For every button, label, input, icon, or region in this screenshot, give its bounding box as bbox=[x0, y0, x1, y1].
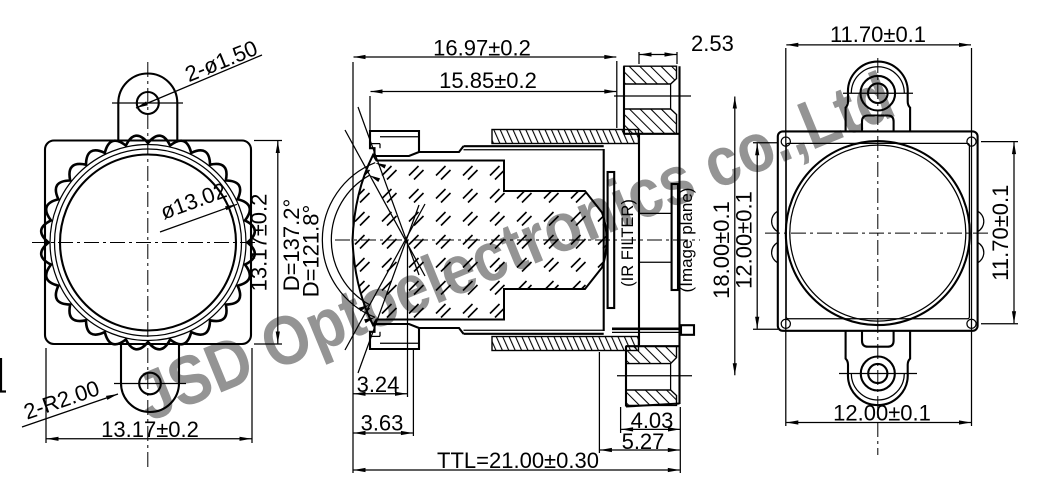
svg-text:15.85±0.2: 15.85±0.2 bbox=[439, 68, 537, 93]
svg-text:TTL=21.00±0.30: TTL=21.00±0.30 bbox=[437, 448, 599, 473]
svg-text:13.17±0.2: 13.17±0.2 bbox=[101, 417, 199, 442]
svg-text:13.17±0.2: 13.17±0.2 bbox=[247, 194, 272, 292]
svg-text:11.70±0.1: 11.70±0.1 bbox=[830, 22, 926, 47]
svg-text:16.97±0.2: 16.97±0.2 bbox=[433, 36, 531, 61]
svg-text:11.70±0.1: 11.70±0.1 bbox=[988, 185, 1013, 281]
svg-text:3.63: 3.63 bbox=[361, 411, 404, 436]
svg-text:18.00±0.1: 18.00±0.1 bbox=[709, 201, 734, 299]
svg-text:3.24: 3.24 bbox=[357, 372, 400, 397]
svg-text:12.00±0.1: 12.00±0.1 bbox=[732, 191, 757, 289]
svg-text:5.27: 5.27 bbox=[622, 429, 665, 454]
svg-text:D=121.8°: D=121.8° bbox=[299, 205, 324, 298]
svg-text:(IR FILTER): (IR FILTER) bbox=[619, 199, 637, 287]
svg-text:12.00±0.1: 12.00±0.1 bbox=[833, 401, 931, 426]
svg-text:2.53: 2.53 bbox=[691, 31, 734, 56]
